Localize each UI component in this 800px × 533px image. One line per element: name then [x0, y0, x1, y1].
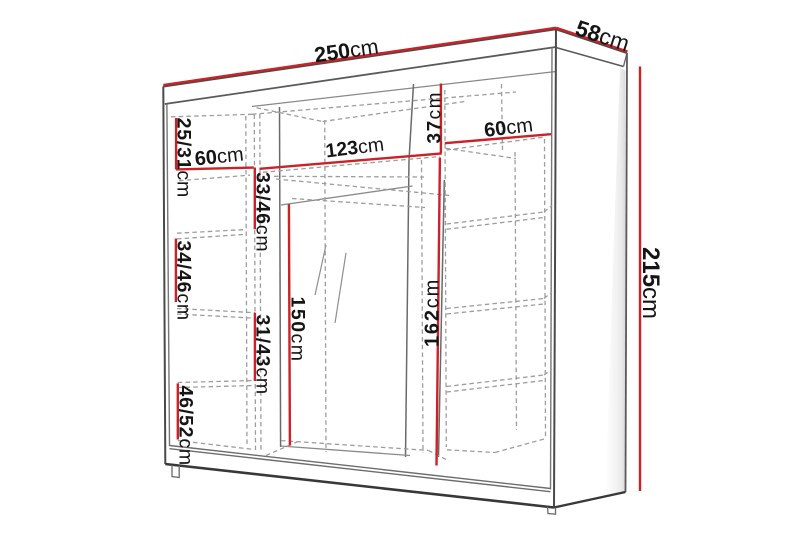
svg-text:25/31cm: 25/31cm: [173, 118, 195, 198]
svg-text:46/52cm: 46/52cm: [175, 386, 197, 466]
svg-text:150cm: 150cm: [287, 297, 309, 363]
svg-text:37cm: 37cm: [425, 91, 446, 143]
svg-text:215cm: 215cm: [637, 247, 664, 319]
svg-text:34/46cm: 34/46cm: [173, 241, 195, 321]
svg-text:162cm: 162cm: [422, 278, 444, 347]
svg-text:31/43cm: 31/43cm: [252, 315, 274, 395]
svg-text:33/46cm: 33/46cm: [252, 172, 274, 252]
